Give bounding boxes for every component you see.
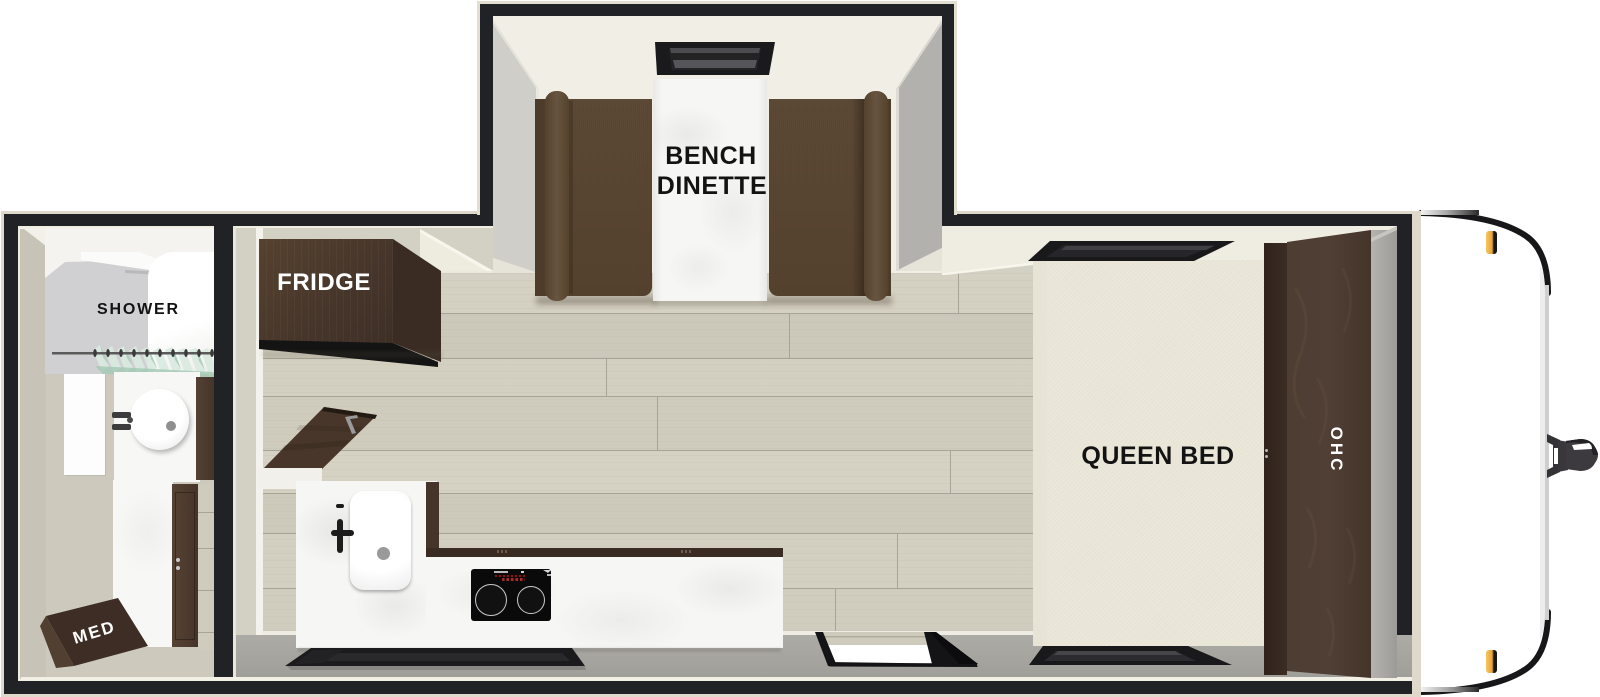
svg-text:OHC: OHC [1327, 427, 1346, 474]
